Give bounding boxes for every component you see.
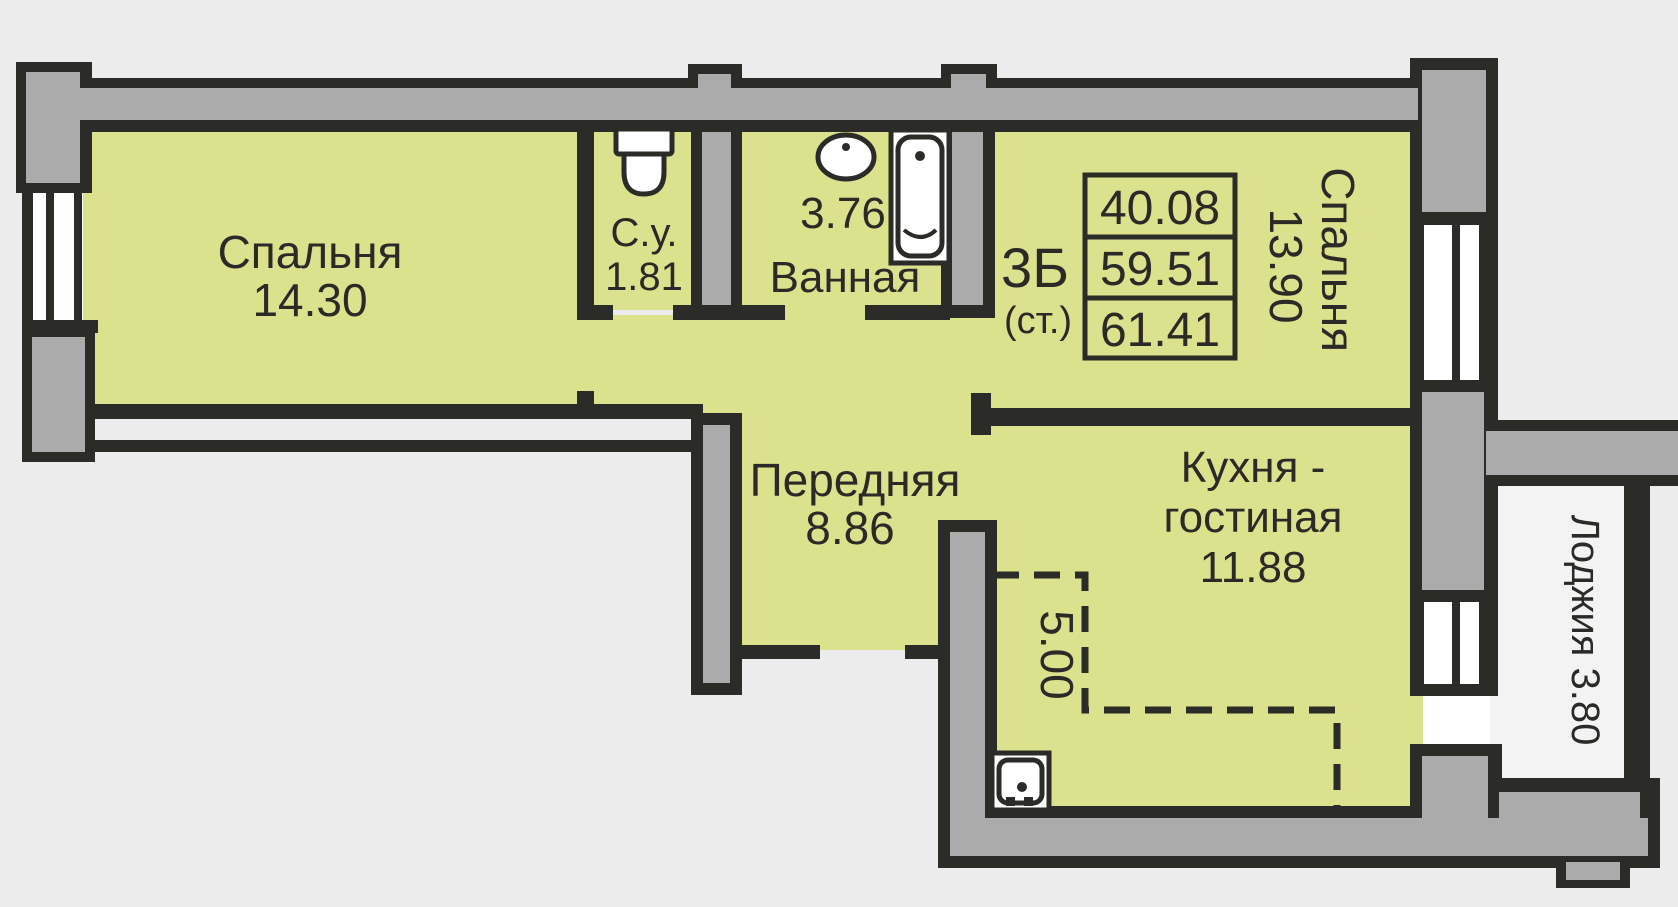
- wall-hall-bottom-left: [735, 645, 820, 659]
- bedroom-left-name: Спальня: [218, 226, 403, 278]
- wall-bedroom-bottom-line1: [88, 404, 703, 419]
- bathtub-icon: [891, 130, 949, 263]
- kitchen-area: 11.88: [1200, 543, 1307, 592]
- stamp-value-1: 40.08: [1100, 182, 1220, 235]
- core-pilaster-top-left: [26, 72, 80, 183]
- window-kitchen-bottom-cap: [1410, 684, 1498, 696]
- bathroom-area: 3.76: [800, 189, 886, 238]
- stamp-value-2: 59.51: [1100, 243, 1220, 296]
- core-under-loggia: [1499, 792, 1640, 818]
- core-hall-left-wall: [703, 425, 730, 683]
- kitchen-name-line2: гостиная: [1164, 493, 1343, 542]
- window-left-outer-line: [22, 187, 33, 327]
- bathroom-name: Ванная: [770, 253, 921, 302]
- kitchen-niche-area: 5.00: [1031, 610, 1083, 700]
- wall-bedroom-door-jamb: [577, 391, 594, 406]
- sink-icon: [818, 135, 874, 179]
- hall-name: Передняя: [750, 454, 961, 506]
- toilet-icon: [616, 129, 672, 194]
- wc-name: С.у.: [610, 211, 677, 255]
- core-wc-bath-wall: [702, 132, 731, 305]
- bedroom-right-name: Спальня: [1312, 167, 1364, 352]
- core-top-wall: [78, 88, 1418, 120]
- window-kitchen-outer-line: [1486, 590, 1498, 696]
- stamp-type: 3Б: [1001, 236, 1069, 299]
- core-bath-right-wall: [952, 132, 983, 305]
- core-right-lower-block: [1422, 756, 1488, 818]
- loggia-label: Лоджия 3.80: [1563, 515, 1607, 746]
- wall-wc-left: [577, 122, 594, 320]
- hall-area: 8.86: [805, 502, 895, 554]
- core-pilaster-top-right: [1422, 70, 1486, 212]
- window-right-outer-line: [1486, 212, 1498, 394]
- bedroom-right-area: 13.90: [1260, 208, 1312, 323]
- kitchen-name-line1: Кухня -: [1181, 443, 1326, 492]
- core-right-mid-block: [1422, 392, 1484, 590]
- core-pilaster-mid1: [698, 74, 731, 120]
- window-kitchen-inner-line: [1410, 590, 1424, 696]
- core-bottom-band: [950, 818, 1648, 856]
- window-right-inner-line: [1410, 212, 1424, 394]
- wall-loggia-right: [1624, 478, 1650, 793]
- window-left-glazing2: [74, 190, 82, 326]
- core-bottom-pilaster: [1566, 862, 1620, 880]
- window-right-glazing1: [1452, 218, 1460, 385]
- wall-bath-bottom-right: [865, 305, 950, 320]
- core-hall-kitchen-wall: [950, 532, 985, 818]
- window-right-glazing2: [1479, 218, 1487, 385]
- window-kitchen-glazing2: [1479, 594, 1487, 690]
- core-loggia-top-band: [1486, 431, 1678, 475]
- bedroom-left-area: 14.30: [252, 274, 367, 326]
- core-left-bottom-block: [32, 337, 85, 452]
- window-kitchen-glazing1: [1452, 594, 1460, 690]
- wc-area: 1.81: [605, 255, 683, 299]
- floor-plan: Спальня 14.30 С.у. 1.81 3.76 Ванная 3Б (…: [0, 0, 1678, 907]
- wall-bath-bottom-left: [733, 305, 785, 320]
- stamp-value-3: 61.41: [1100, 304, 1220, 357]
- wall-kitchen-divider-cap: [971, 393, 991, 435]
- kitchen-sink-icon: [992, 753, 1049, 810]
- wall-kitchen-divider: [991, 408, 1420, 426]
- window-left-glazing1: [46, 190, 54, 326]
- stamp-note: (ст.): [1004, 300, 1072, 342]
- wall-bedroom-bottom-line2: [88, 440, 703, 452]
- wall-wc-bottom-left: [592, 305, 613, 320]
- core-pilaster-mid2: [951, 74, 986, 120]
- floor-plan-page: Спальня 14.30 С.у. 1.81 3.76 Ванная 3Б (…: [0, 0, 1678, 907]
